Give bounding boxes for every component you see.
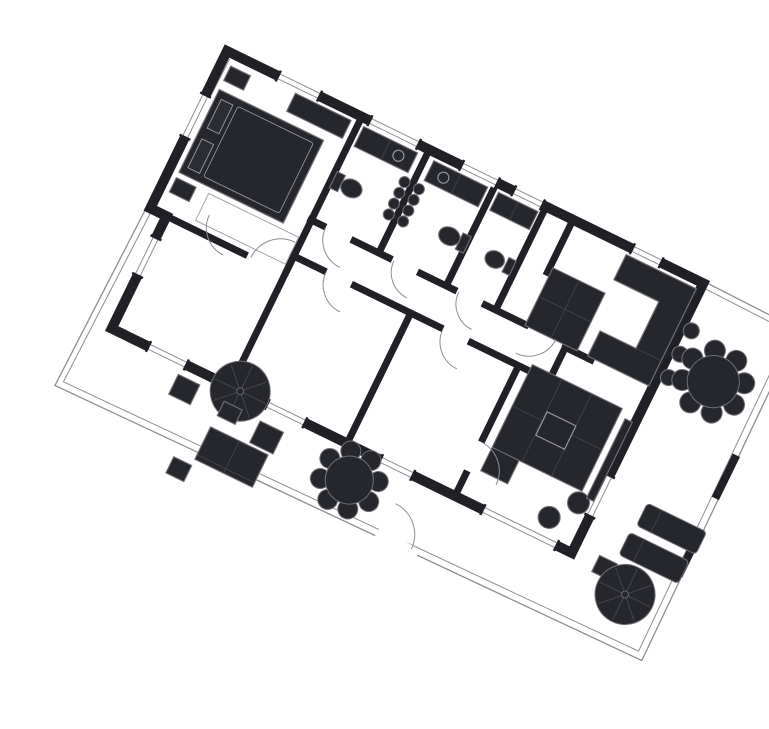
floor-plan bbox=[40, 16, 769, 713]
floor-plan-svg bbox=[40, 16, 769, 713]
